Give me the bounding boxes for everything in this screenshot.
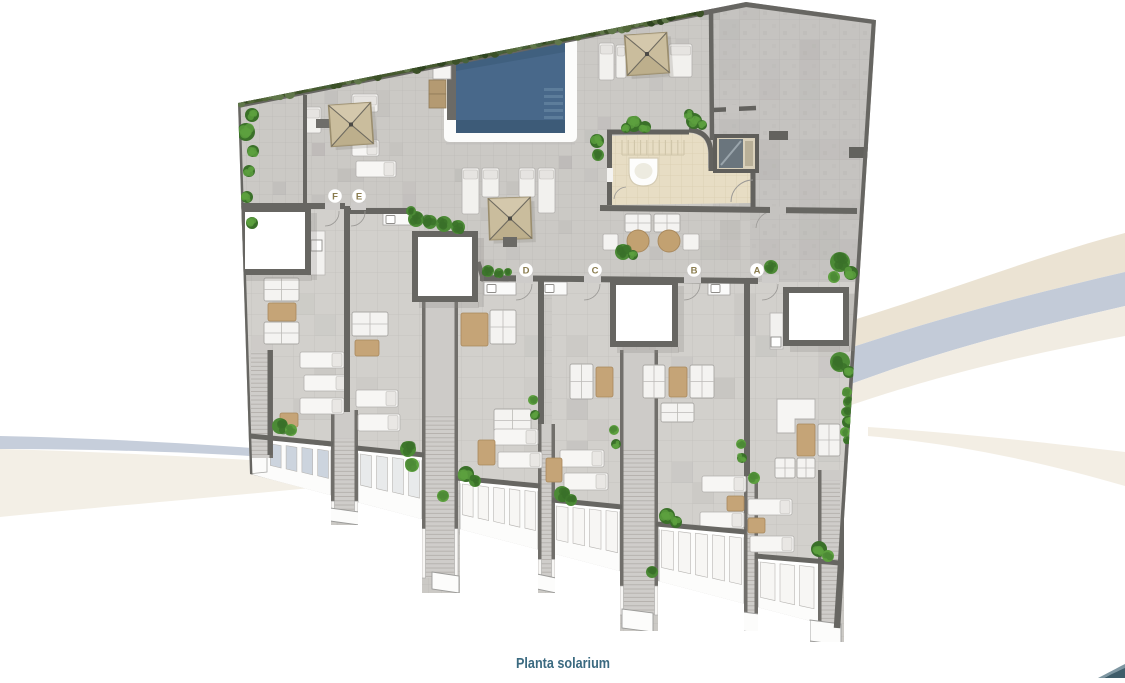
svg-text:D: D (523, 265, 530, 276)
svg-text:E: E (356, 191, 362, 202)
svg-text:A: A (754, 265, 761, 276)
svg-text:B: B (691, 265, 698, 276)
svg-text:F: F (332, 191, 338, 202)
svg-text:Planta solarium: Planta solarium (516, 655, 610, 672)
svg-text:C: C (592, 265, 599, 276)
